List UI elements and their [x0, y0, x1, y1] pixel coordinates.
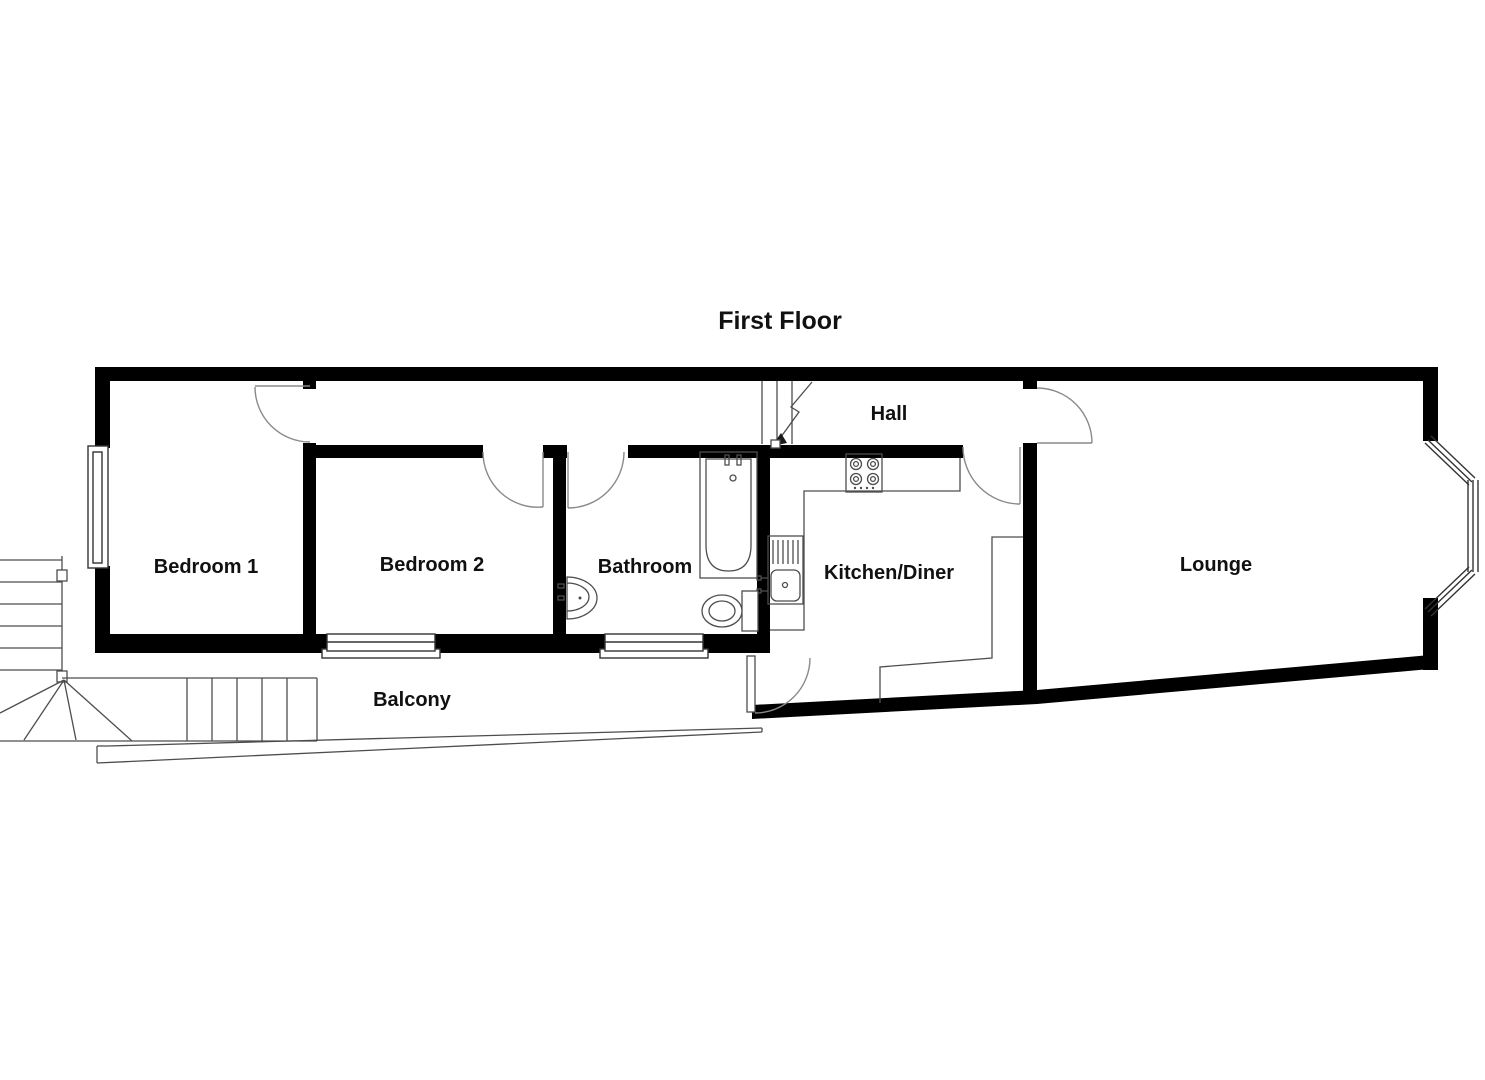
wall-bottom-bathroom — [703, 634, 770, 653]
bay-window-lounge — [1425, 436, 1478, 616]
wall-bedroom1-door-stub — [303, 381, 316, 389]
wall-bedroom2-bathroom — [553, 445, 566, 634]
door-hall-lounge — [1037, 388, 1092, 443]
door-bathroom — [568, 452, 624, 508]
doors — [255, 386, 1092, 713]
wall-bottom-lounge-diagonal — [1037, 655, 1430, 704]
wall-bottom-bedroom2 — [435, 634, 605, 653]
internal-stairs-icon — [762, 381, 812, 448]
label-kitchen: Kitchen/Diner — [824, 562, 954, 584]
bathroom-fixtures — [558, 452, 758, 631]
door-bedroom1 — [255, 386, 310, 442]
floor-plan-page: First Floor — [0, 0, 1485, 1080]
page-title: First Floor — [718, 307, 842, 335]
wall-bottom-bedroom1 — [95, 634, 327, 653]
window-bedroom1-left — [88, 446, 108, 568]
door-hall-kitchen — [963, 447, 1020, 504]
wall-kitchen-lounge — [1023, 443, 1037, 695]
toilet-icon — [702, 591, 758, 631]
label-bathroom: Bathroom — [598, 556, 692, 578]
label-lounge: Lounge — [1180, 554, 1252, 576]
window-bathroom-bottom — [600, 634, 708, 658]
label-balcony: Balcony — [373, 689, 452, 711]
wall-lounge-door-stub — [1023, 381, 1037, 389]
balcony-edge — [97, 728, 762, 763]
newel-post-top — [57, 570, 67, 581]
window-bedroom2-bottom — [322, 634, 440, 658]
wall-bedroom1-bedroom2 — [303, 443, 316, 634]
label-hall: Hall — [871, 403, 908, 425]
hob-icon — [846, 454, 882, 492]
wall-kitchen-top — [770, 445, 963, 458]
wall-left-upper — [95, 367, 110, 448]
wall-bedroom2-top — [316, 445, 483, 458]
label-bedroom1: Bedroom 1 — [154, 556, 258, 578]
wall-bottom-kitchen-diagonal — [752, 690, 1037, 719]
wall-bay-upper-stub — [1423, 381, 1438, 441]
floor-plan-drawing: First Floor — [0, 0, 1485, 1080]
label-bedroom2: Bedroom 2 — [380, 554, 484, 576]
bathtub-icon — [700, 452, 757, 578]
wall-top — [95, 367, 1438, 381]
door-bedroom2 — [483, 452, 543, 507]
